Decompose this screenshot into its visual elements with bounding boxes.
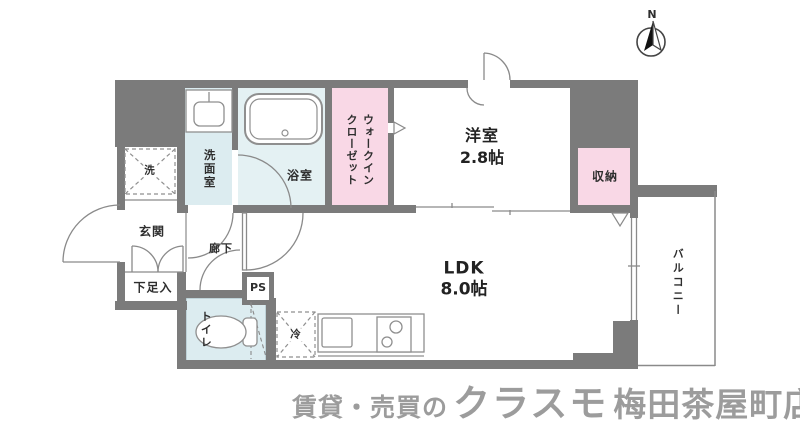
floorplan-image: 洋室 2.8帖 LDK 8.0帖 ウォークイン クローゼット 収納 浴室 洗面室… bbox=[0, 0, 800, 428]
footer-prefix: 賃貸・売買の bbox=[292, 388, 448, 424]
washer-label: 洗 bbox=[143, 164, 157, 177]
floorplan-drawing bbox=[0, 0, 800, 428]
kitchen-counter bbox=[318, 314, 424, 356]
hallway-label: 廊下 bbox=[209, 242, 233, 256]
ldk-door-arc bbox=[246, 213, 303, 270]
entrance-door-arc bbox=[63, 205, 120, 262]
pipe-space-label: PS bbox=[250, 281, 266, 295]
shoe-box-door-arc-left bbox=[132, 246, 158, 272]
western-room-outer-door-arc bbox=[484, 53, 510, 80]
shoe-box-label: 下足入 bbox=[133, 281, 172, 296]
western-room-size: 2.8帖 bbox=[460, 148, 504, 168]
ldk-door-leaf bbox=[243, 213, 247, 270]
top-door-opening bbox=[468, 80, 510, 88]
storage-label: 収納 bbox=[592, 170, 618, 185]
walk-in-closet-label: ウォークイン クローゼット bbox=[343, 114, 376, 186]
shoe-box-door-arc-right bbox=[158, 246, 183, 272]
ldk-size: 8.0帖 bbox=[440, 279, 487, 300]
balcony-window bbox=[628, 218, 640, 320]
washroom-label: 洗面室 bbox=[200, 149, 217, 190]
bathtub bbox=[245, 94, 322, 144]
footer-branch: 梅田茶屋町店 bbox=[613, 378, 800, 426]
washbasin bbox=[186, 90, 232, 132]
toilet-label: トイレ bbox=[197, 311, 214, 350]
storage-door-marker bbox=[612, 213, 628, 226]
balcony-label: バルコニー bbox=[669, 248, 686, 318]
fridge-label: 冷 bbox=[289, 328, 303, 341]
compass bbox=[637, 21, 665, 56]
bathroom-label: 浴室 bbox=[287, 169, 313, 184]
entrance-label: 玄関 bbox=[139, 225, 165, 240]
toilet-door-arc bbox=[200, 250, 240, 290]
western-room-label: 洋室 bbox=[465, 126, 499, 146]
ldk-label: LDK bbox=[443, 258, 484, 279]
footer-brand: クラスモ bbox=[453, 373, 608, 427]
compass-north-label: N bbox=[647, 8, 656, 22]
footer-logo: 賃貸・売買の クラスモ 梅田茶屋町店 bbox=[292, 373, 800, 427]
